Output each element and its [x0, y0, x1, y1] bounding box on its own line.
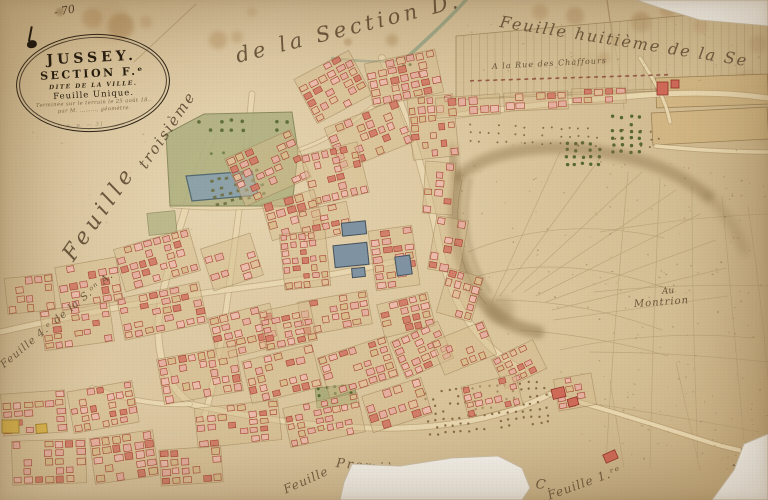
town-block — [297, 201, 353, 243]
town-block — [572, 87, 627, 105]
public-building — [341, 221, 366, 236]
town-block — [117, 282, 208, 341]
town-block — [390, 321, 454, 379]
parcel-marks — [455, 142, 742, 336]
road — [204, 94, 252, 418]
town-block — [436, 268, 483, 322]
parcel-line — [610, 380, 624, 468]
road — [656, 146, 768, 152]
red-building — [551, 387, 566, 400]
road — [438, 93, 768, 118]
town-block — [1, 390, 68, 436]
cadastral-map-jussey: - 70 de la Section D. Feuille huitième d… — [0, 0, 768, 500]
tear-bottom-right — [712, 434, 768, 500]
town-block — [113, 228, 200, 292]
stream — [404, 0, 466, 60]
road — [550, 394, 768, 456]
bulb-edge — [457, 180, 486, 304]
yellow-building — [2, 420, 19, 433]
tear-bottom-center — [340, 456, 530, 500]
town-block — [377, 292, 436, 338]
road — [158, 136, 212, 404]
town-block — [364, 49, 444, 107]
parcel-line — [748, 206, 768, 378]
stream — [332, 58, 404, 61]
label-section-top: de la Section D. — [233, 0, 464, 68]
town-block — [4, 274, 56, 315]
road — [382, 58, 522, 370]
road — [298, 100, 382, 150]
parcel-line — [722, 196, 744, 440]
town-block — [435, 94, 500, 118]
label-premiere-section-c: Première de la Section C. — [335, 456, 554, 494]
stain — [566, 7, 584, 25]
town-block — [504, 91, 569, 111]
label-au: Au — [662, 286, 675, 297]
escarpment — [452, 148, 458, 178]
public-building — [352, 267, 366, 277]
parcel-line — [692, 186, 698, 458]
parcel-marks — [593, 163, 767, 460]
town-block — [194, 400, 282, 449]
parcel-line — [552, 268, 726, 310]
ink-blot-icon — [27, 40, 37, 49]
tan-parcel — [656, 74, 768, 108]
parcel-line — [590, 352, 768, 362]
tree-dots — [396, 57, 411, 67]
label-montrion: Montrion — [634, 295, 690, 310]
strip-baseline — [456, 86, 768, 100]
public-building — [395, 255, 412, 276]
stain — [247, 7, 257, 17]
stain — [82, 8, 102, 28]
map-section-subtitle: DITE DE LA VILLE. — [49, 80, 138, 92]
town-block — [298, 290, 373, 336]
town-block — [422, 161, 456, 215]
basin — [186, 171, 258, 201]
label-feuille-huitieme: Feuille huitième de la Se — [499, 12, 750, 70]
town-block — [40, 301, 115, 350]
escarpment-inner — [467, 180, 490, 292]
road — [640, 58, 670, 122]
paper-tears — [340, 0, 768, 500]
label-feuille-left: Feuille — [58, 161, 142, 266]
label-feuille-1re: Feuille 1.ʳᵉ — [546, 463, 623, 500]
road — [550, 394, 768, 456]
road — [204, 94, 252, 418]
red-building — [671, 80, 679, 88]
road — [158, 136, 212, 404]
stain — [209, 31, 227, 49]
tear-crease — [612, 34, 624, 110]
label-rue-des-chaffours: A la Rue des Chaffours — [492, 56, 607, 71]
town-block — [279, 230, 331, 291]
stain — [749, 35, 767, 53]
town-block — [242, 344, 323, 404]
title-cartouche: JUSSEY. SECTION F.ᵉ DITE DE LA VILLE. Fe… — [14, 30, 173, 136]
road — [640, 58, 670, 122]
parcel-line — [524, 190, 676, 292]
parcel-marks — [467, 24, 759, 82]
parcel-line — [554, 296, 728, 320]
parcel-line — [536, 214, 700, 296]
town-block — [324, 99, 414, 171]
parcel-line — [500, 158, 600, 296]
town-block — [67, 381, 139, 434]
parcel-line — [478, 267, 676, 292]
town-block — [55, 257, 124, 311]
town-block — [283, 393, 366, 448]
stain — [631, 12, 651, 32]
orchard-dots — [423, 378, 550, 437]
garden-small — [315, 384, 357, 408]
tree-dots — [565, 141, 602, 166]
orchard-dots — [469, 123, 660, 149]
road — [92, 388, 190, 404]
road — [656, 146, 768, 152]
road — [0, 262, 392, 332]
strip-field-band — [456, 8, 768, 100]
town-block — [491, 340, 546, 389]
parcel-marks — [560, 361, 761, 470]
town-block — [200, 233, 263, 291]
town-block — [368, 225, 420, 291]
escarpment — [464, 148, 708, 196]
town-block — [157, 345, 244, 404]
stain — [723, 13, 733, 23]
ink-spot — [56, 8, 64, 16]
escarpment — [486, 296, 514, 324]
parcel-line — [606, 172, 628, 462]
stain — [752, 120, 768, 140]
stain — [693, 19, 707, 33]
label-feuille-bottom: Feuille — [281, 464, 331, 496]
stain — [532, 4, 548, 20]
orchard-squares — [208, 167, 266, 207]
town-block — [11, 439, 86, 486]
red-building — [657, 82, 668, 95]
stain — [562, 52, 606, 96]
paper-specks — [32, 126, 193, 230]
red-building — [603, 450, 619, 464]
yellow-building — [36, 424, 48, 434]
label-feuille-4e: Feuille 4.ᵉ de la S.ᵒⁿ A. — [0, 269, 116, 371]
town-block — [258, 301, 317, 351]
stain — [344, 38, 352, 46]
road — [92, 388, 190, 404]
church-building — [333, 242, 369, 267]
town-block — [225, 130, 312, 207]
stain — [734, 70, 762, 98]
town-block — [301, 142, 370, 206]
parcel-line — [492, 152, 560, 302]
town-block — [461, 374, 523, 419]
page-number: - 70 — [53, 2, 76, 18]
town-block — [208, 303, 281, 361]
town-block — [317, 336, 398, 398]
tree-dots — [197, 118, 289, 132]
tan-parcel — [651, 107, 768, 145]
town-block — [407, 94, 459, 160]
town-block — [362, 377, 433, 432]
parcel-line — [560, 335, 752, 350]
town-block — [428, 216, 469, 275]
stain — [598, 52, 610, 64]
tear-crease — [607, 0, 612, 34]
map-title: JUSSEY. — [46, 49, 137, 69]
stain — [386, 34, 398, 46]
tree-dots — [317, 383, 353, 397]
road — [382, 58, 522, 370]
parcel-line — [676, 362, 700, 470]
road — [172, 202, 298, 208]
road — [298, 100, 382, 150]
road — [0, 262, 392, 332]
parcel-line — [594, 404, 760, 432]
stain — [610, 35, 620, 45]
parcel-line — [468, 229, 664, 252]
parcel-line — [496, 300, 662, 330]
parcel-line — [600, 214, 768, 232]
road — [190, 394, 550, 428]
tree-dots — [611, 114, 643, 154]
town-block — [554, 373, 597, 411]
red-building — [567, 397, 579, 407]
stain — [140, 16, 152, 28]
escarpment — [455, 178, 538, 332]
label-cinq-de-la: 5.ᵉ de la — [718, 439, 757, 497]
stain — [660, 2, 676, 18]
parcel-line — [546, 240, 716, 302]
parcel-line — [520, 330, 668, 356]
town-block — [294, 50, 372, 123]
road — [190, 394, 550, 428]
town-block — [89, 430, 159, 484]
road — [438, 93, 768, 118]
map-section-title: SECTION F.ᵉ — [40, 64, 145, 83]
escarpment — [708, 196, 744, 250]
town-block — [262, 189, 324, 240]
parcel-line — [512, 172, 642, 292]
parcel-line — [594, 285, 768, 292]
road — [172, 202, 298, 208]
garden — [166, 112, 298, 206]
tear-top-right — [636, 0, 768, 26]
tree-dots — [210, 151, 225, 155]
town-block — [159, 446, 223, 486]
town-block — [431, 321, 496, 375]
garden-small — [147, 211, 177, 236]
parcel-line — [650, 178, 660, 468]
stain — [231, 31, 243, 43]
